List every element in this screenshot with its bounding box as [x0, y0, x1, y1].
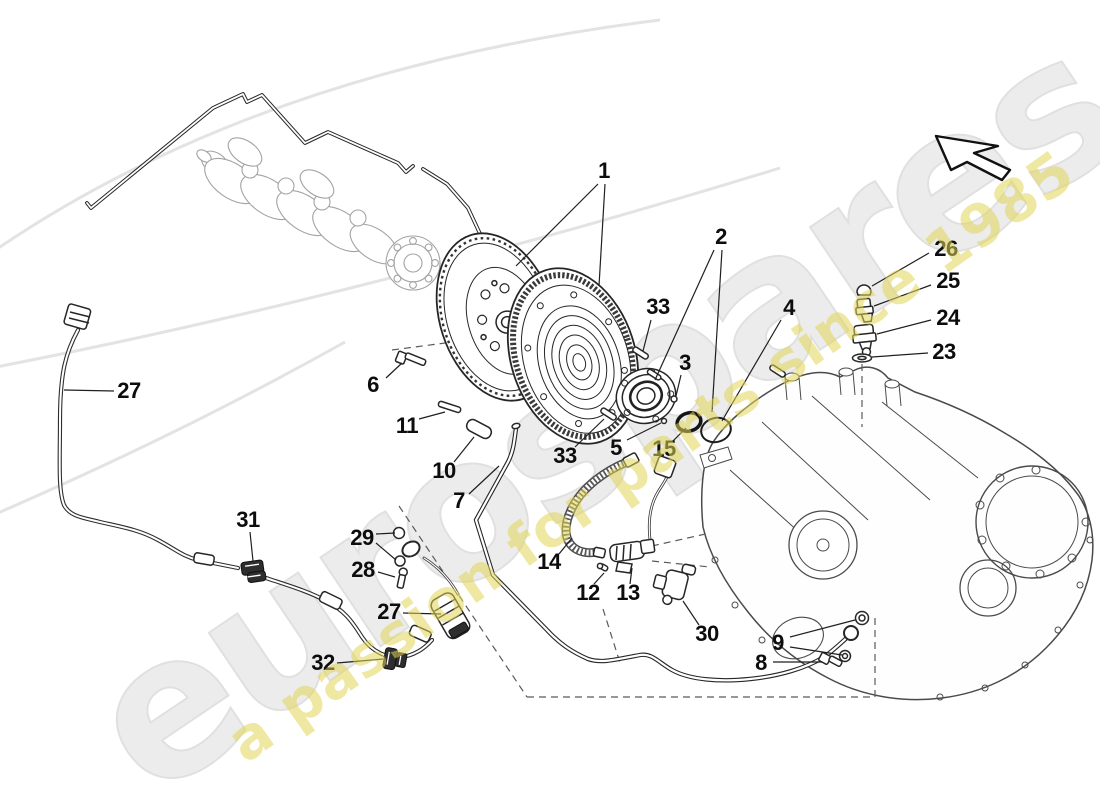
- gearbox-case-drawing: [700, 367, 1093, 700]
- leader-line-1: [599, 184, 605, 286]
- sensor-parts: [597, 455, 696, 609]
- leader-line-32: [337, 659, 383, 663]
- arrow-up-left-icon: [936, 136, 1010, 180]
- crankshaft-drawing: [195, 132, 440, 290]
- leader-line-24: [877, 320, 931, 334]
- leader-line-23: [872, 353, 928, 357]
- leader-line-2: [712, 250, 722, 412]
- leader-line-31: [250, 532, 253, 561]
- parts-diagram-drawing: [0, 0, 1100, 800]
- leader-line-29: [376, 533, 395, 534]
- leader-line-6: [386, 363, 402, 378]
- leader-line-2: [655, 250, 714, 380]
- leader-line-5: [627, 423, 661, 440]
- parts-diagram-page: eurospares: [0, 0, 1100, 800]
- leader-line-10: [454, 437, 474, 462]
- leader-line-3: [676, 375, 681, 396]
- leader-line-26: [872, 253, 929, 286]
- leader-line-11: [419, 412, 445, 419]
- leader-line-12: [594, 573, 604, 584]
- leader-line-33: [643, 320, 651, 351]
- leader-line-27: [64, 390, 114, 391]
- speed-sensor-stack: [852, 285, 878, 362]
- leader-line-30: [683, 601, 699, 625]
- leader-line-29: [376, 543, 396, 560]
- leader-line-25: [874, 285, 931, 306]
- leader-line-28: [378, 572, 395, 577]
